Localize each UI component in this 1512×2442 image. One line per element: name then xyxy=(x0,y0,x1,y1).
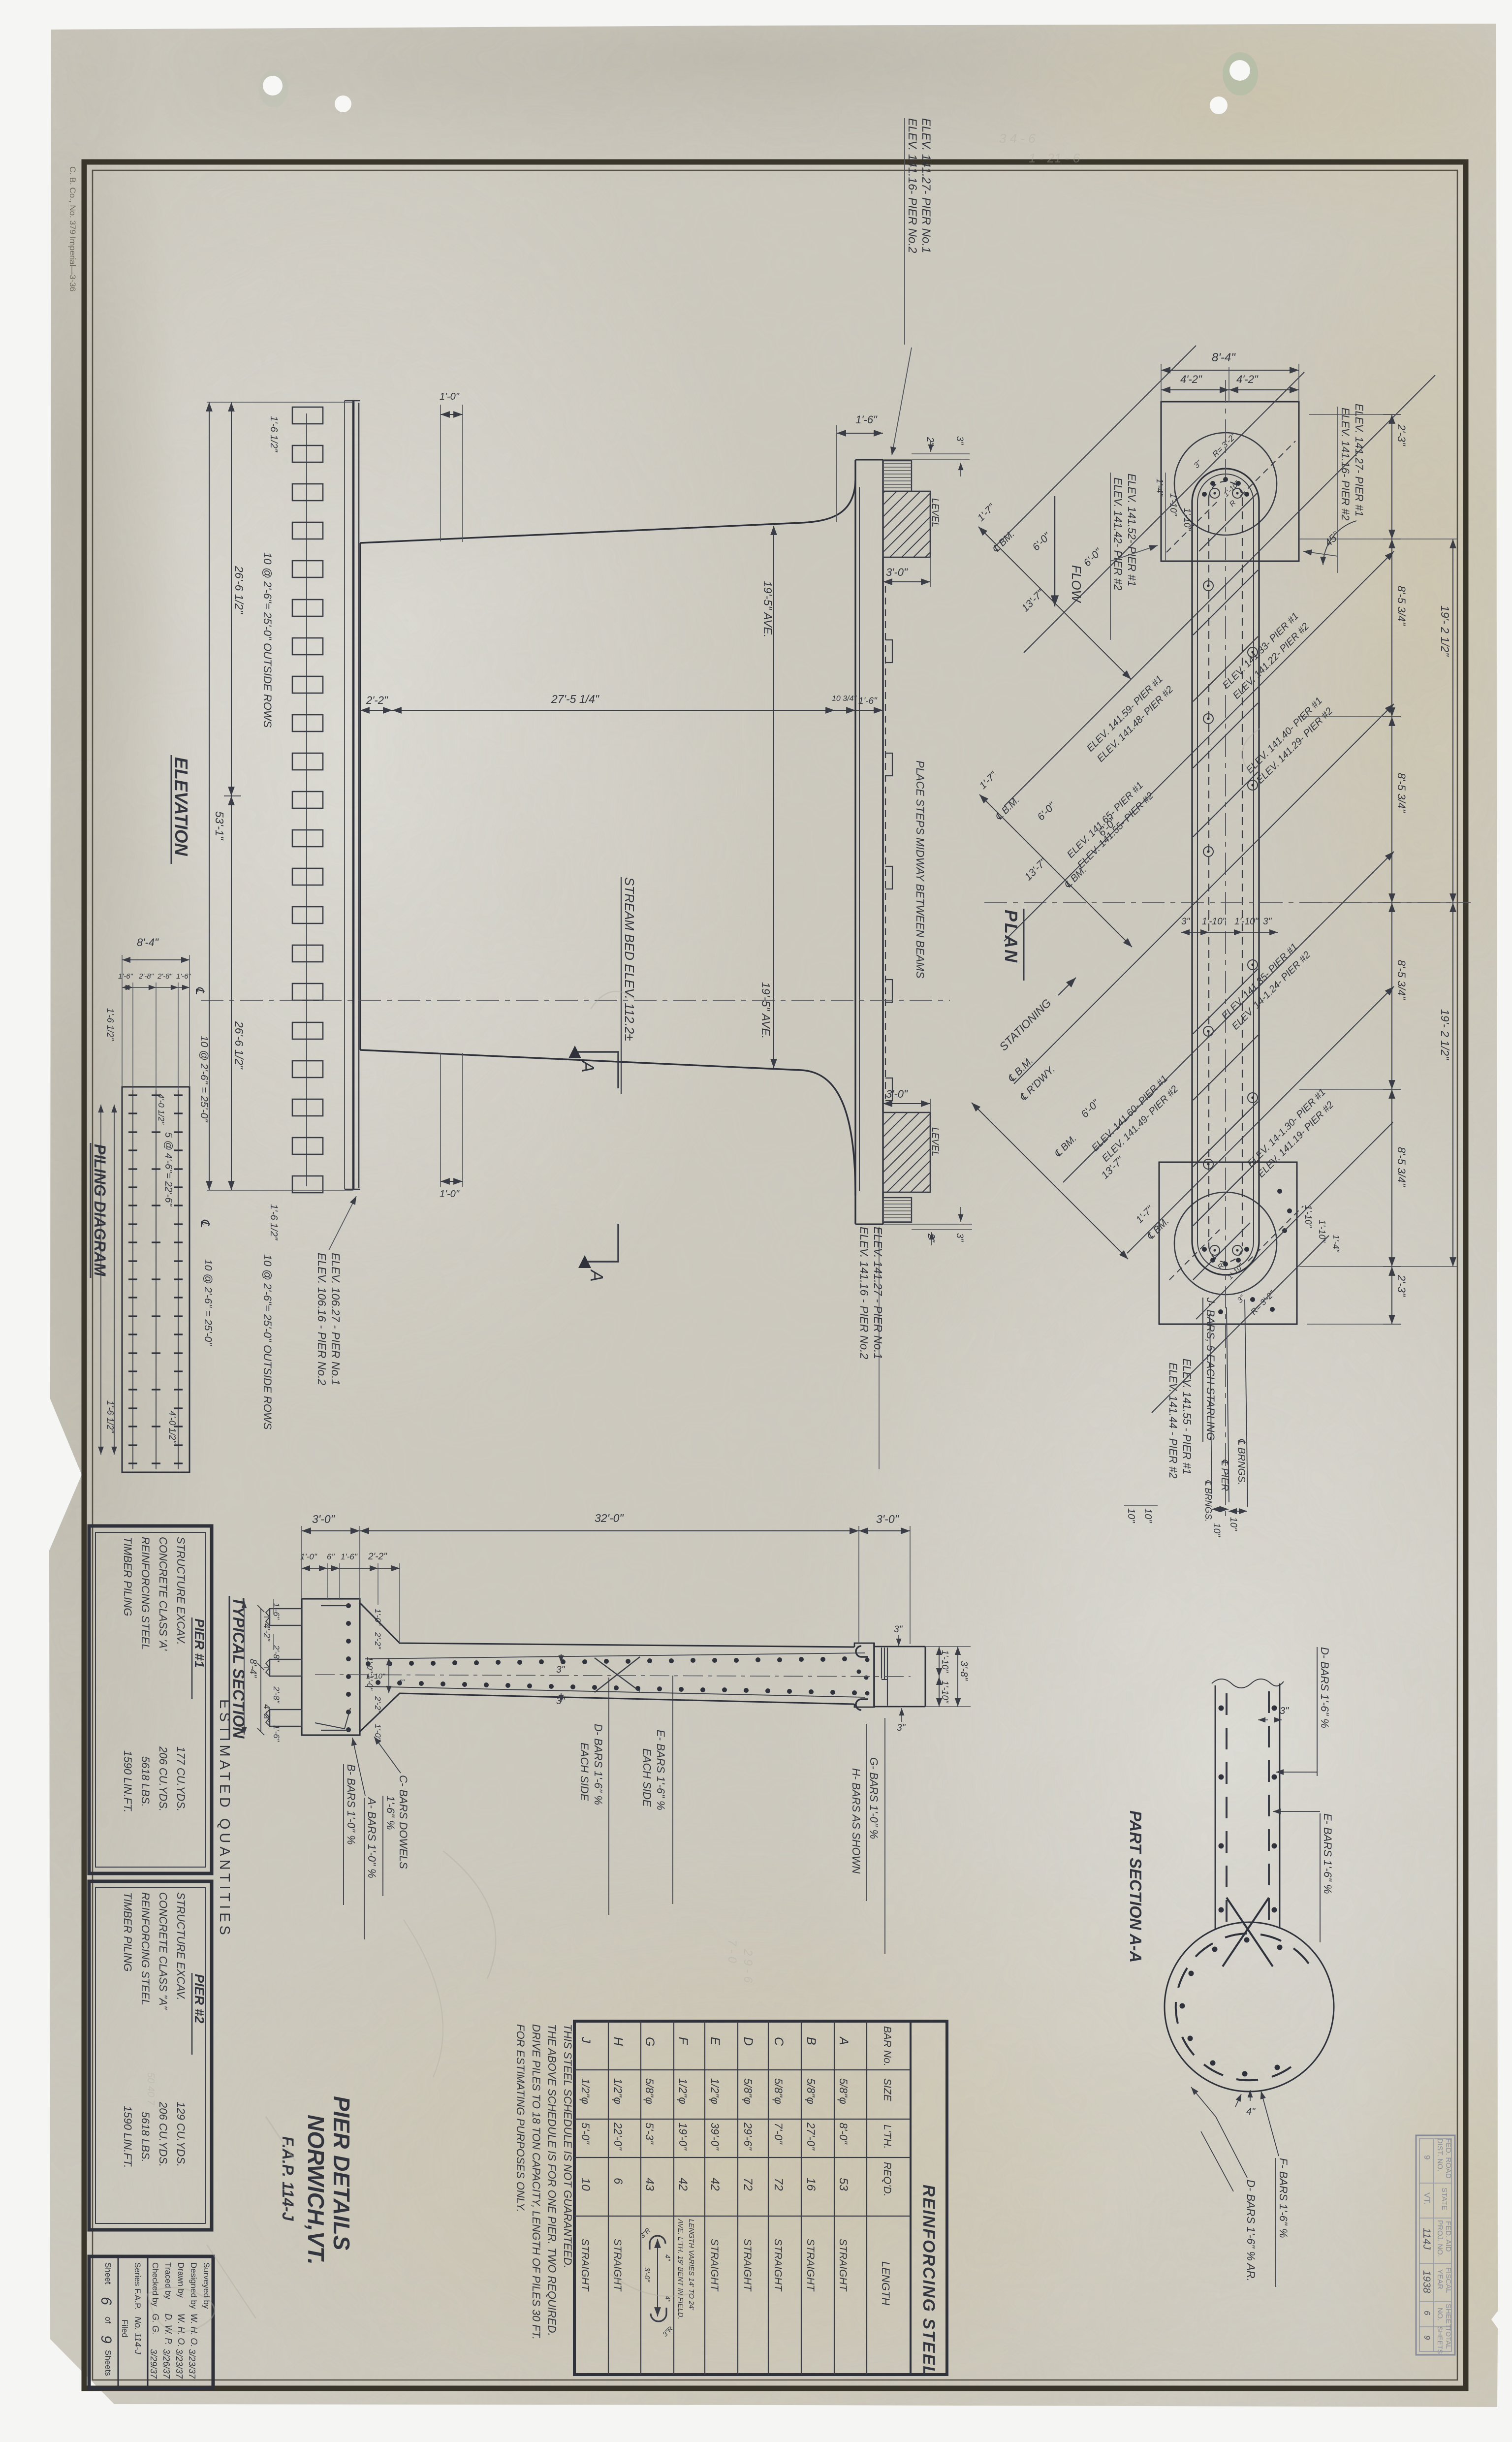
svg-text:1/2"φ: 1/2"φ xyxy=(677,2078,689,2104)
svg-text:1'-10": 1'-10" xyxy=(1303,1205,1313,1228)
svg-text:3'-0": 3'-0" xyxy=(886,566,908,578)
svg-text:9: 9 xyxy=(98,2335,114,2344)
svg-text:of: of xyxy=(103,2316,113,2323)
svg-text:10: 10 xyxy=(579,2178,592,2191)
svg-text:PLACE STEPS MIDWAY BETWEEN BEA: PLACE STEPS MIDWAY BETWEEN BEAMS xyxy=(914,761,926,979)
svg-text:72: 72 xyxy=(741,2178,755,2191)
svg-text:5'-0": 5'-0" xyxy=(579,2123,592,2145)
svg-text:72: 72 xyxy=(772,2178,785,2191)
svg-text:NORWICH,VT.: NORWICH,VT. xyxy=(303,2115,329,2265)
svg-text:C: C xyxy=(772,2037,786,2046)
svg-text:19'-5" AVE.: 19'-5" AVE. xyxy=(761,581,774,637)
svg-text:BAR No.: BAR No. xyxy=(882,2026,893,2066)
svg-text:1590 LIN.FT.: 1590 LIN.FT. xyxy=(122,1750,134,1812)
svg-text:8'-5 3/4": 8'-5 3/4" xyxy=(1395,960,1408,1000)
svg-text:5/8"φ: 5/8"φ xyxy=(805,2078,817,2104)
svg-text:STREAM BED ELEV. 112.2±: STREAM BED ELEV. 112.2± xyxy=(622,877,637,1041)
svg-text:4": 4" xyxy=(1246,2106,1256,2117)
svg-text:3": 3" xyxy=(556,1665,566,1675)
svg-text:J: J xyxy=(579,2036,593,2043)
svg-text:4'-0 1/2": 4'-0 1/2" xyxy=(157,1094,166,1125)
svg-text:STRAIGHT: STRAIGHT xyxy=(612,2239,623,2292)
svg-text:3'-0": 3'-0" xyxy=(876,1513,900,1525)
svg-text:2'-3": 2'-3" xyxy=(1395,424,1408,446)
svg-text:5 @ 4'-6"= 22'-6": 5 @ 4'-6"= 22'-6" xyxy=(163,1132,174,1206)
svg-text:℄ BRNGS.: ℄ BRNGS. xyxy=(1236,1438,1247,1485)
svg-text:177 CU.YDS.: 177 CU.YDS. xyxy=(175,1746,187,1811)
svg-text:PILING DIAGRAM: PILING DIAGRAM xyxy=(91,1144,109,1277)
svg-text:SHEETS: SHEETS xyxy=(1436,2326,1444,2354)
svg-text:PIER #1: PIER #1 xyxy=(192,1618,207,1668)
svg-text:6: 6 xyxy=(1422,2311,1432,2315)
svg-text:8'-5 3/4": 8'-5 3/4" xyxy=(1395,586,1408,626)
svg-text:5618 LBS.: 5618 LBS. xyxy=(139,2112,152,2162)
svg-text:27'-0": 27'-0" xyxy=(805,2122,817,2151)
svg-text:2'-8": 2'-8" xyxy=(138,972,154,981)
svg-text:19'- 2 1/2": 19'- 2 1/2" xyxy=(1439,1009,1451,1061)
svg-text:1'-4": 1'-4" xyxy=(1155,478,1165,497)
svg-text:THE ABOVE SCHEDULE IS FOR ONE: THE ABOVE SCHEDULE IS FOR ONE PIER. TWO … xyxy=(546,2024,558,2336)
svg-text:D- BARS 1'-6" %: D- BARS 1'-6" % xyxy=(592,1724,604,1805)
svg-text:1'-6" %: 1'-6" % xyxy=(384,1796,397,1830)
svg-text:Series F.A.P.: Series F.A.P. xyxy=(133,2262,142,2310)
svg-text:Drawn by: Drawn by xyxy=(176,2262,186,2298)
svg-text:4'-0 1/2": 4'-0 1/2" xyxy=(167,1411,177,1444)
svg-text:LENGTH: LENGTH xyxy=(880,2261,892,2305)
svg-text:FED. AID: FED. AID xyxy=(1444,2221,1452,2252)
svg-text:D- BARS 1'-6" % AR.: D- BARS 1'-6" % AR. xyxy=(1245,2180,1257,2282)
svg-text:1/2"φ: 1/2"φ xyxy=(709,2078,721,2104)
svg-text:1'-6 1/2": 1'-6 1/2" xyxy=(105,1008,115,1041)
svg-text:4'-2": 4'-2" xyxy=(262,1623,272,1642)
svg-text:1'-6": 1'-6" xyxy=(176,972,191,981)
svg-text:L'TH.: L'TH. xyxy=(882,2125,893,2149)
svg-text:1'-4": 1'-4" xyxy=(1331,1235,1341,1253)
svg-text:42: 42 xyxy=(708,2178,722,2191)
svg-text:6": 6" xyxy=(327,1552,335,1561)
svg-text:4": 4" xyxy=(398,1678,405,1686)
svg-text:3/26/37: 3/26/37 xyxy=(161,2349,171,2379)
svg-text:53: 53 xyxy=(837,2178,850,2191)
svg-text:26'-6 1/2": 26'-6 1/2" xyxy=(233,566,246,615)
svg-text:Sheets: Sheets xyxy=(103,2350,113,2376)
svg-text:1938: 1938 xyxy=(1421,2270,1432,2293)
svg-text:2'-3": 2'-3" xyxy=(1395,1274,1408,1297)
svg-text:ELEV. 141.55 - PIER #1: ELEV. 141.55 - PIER #1 xyxy=(1181,1359,1193,1475)
svg-text:PROJ. NO.: PROJ. NO. xyxy=(1436,2220,1444,2257)
svg-text:FLOW: FLOW xyxy=(1069,565,1084,603)
svg-text:No. 114-J: No. 114-J xyxy=(133,2316,143,2355)
svg-text:6: 6 xyxy=(611,2178,625,2185)
svg-text:STRAIGHT: STRAIGHT xyxy=(772,2239,784,2292)
svg-text:2'-8": 2'-8" xyxy=(272,1686,281,1704)
svg-text:4'-2": 4'-2" xyxy=(262,1704,272,1722)
svg-text:G: G xyxy=(643,2037,657,2046)
svg-text:1'-6": 1'-6" xyxy=(272,1603,281,1620)
svg-text:39'-0": 39'-0" xyxy=(709,2123,721,2151)
svg-text:2": 2" xyxy=(925,437,935,446)
svg-text:D- BARS 1'-6" %: D- BARS 1'-6" % xyxy=(1319,1647,1331,1728)
svg-text:Filed: Filed xyxy=(120,2319,129,2338)
svg-text:℄ PIER: ℄ PIER xyxy=(1219,1459,1230,1491)
svg-text:D: D xyxy=(741,2037,755,2046)
svg-text:YEAR: YEAR xyxy=(1436,2269,1444,2289)
svg-text:7 - 0: 7 - 0 xyxy=(725,1939,739,1964)
svg-text:A- BARS 1'-0" %: A- BARS 1'-0" % xyxy=(366,1797,378,1878)
svg-text:1'-10": 1'-10" xyxy=(1182,508,1192,531)
svg-text:ESTIMATED QUANTITIES: ESTIMATED QUANTITIES xyxy=(217,1699,232,1938)
svg-text:19'-0": 19'-0" xyxy=(677,2123,689,2151)
svg-text:3": 3" xyxy=(954,1233,965,1242)
svg-text:℄: ℄ xyxy=(193,986,206,994)
svg-text:SIZE: SIZE xyxy=(882,2078,893,2102)
svg-text:16: 16 xyxy=(804,2178,818,2191)
svg-text:1/2"φ: 1/2"φ xyxy=(579,2078,592,2104)
svg-text:FED. ROAD: FED. ROAD xyxy=(1444,2138,1452,2179)
svg-text:THIS STEEL SCHEDULE IS NOT GUA: THIS STEEL SCHEDULE IS NOT GUARANTEED. xyxy=(562,2024,574,2268)
svg-text:129 CU.YDS.: 129 CU.YDS. xyxy=(175,2102,187,2167)
svg-text:ELEV. 141.16 - PIER No.2: ELEV. 141.16 - PIER No.2 xyxy=(858,1227,871,1360)
svg-text:A: A xyxy=(578,1060,598,1073)
svg-text:2'-2": 2'-2" xyxy=(366,694,388,706)
svg-text:3/23/37: 3/23/37 xyxy=(174,2349,184,2379)
svg-text:1'-10": 1'-10" xyxy=(940,1681,950,1704)
svg-text:AVE. L'TH. 19' BENT IN FIELD.: AVE. L'TH. 19' BENT IN FIELD. xyxy=(676,2219,684,2319)
svg-text:3 4 - 6: 3 4 - 6 xyxy=(999,131,1036,146)
svg-text:ELEV. 141.27- PIER No.1: ELEV. 141.27- PIER No.1 xyxy=(919,118,933,253)
svg-text:19'- 2 1/2": 19'- 2 1/2" xyxy=(1439,605,1451,657)
svg-text:H: H xyxy=(611,2037,625,2046)
svg-text:19'-5" AVE.: 19'-5" AVE. xyxy=(759,982,772,1039)
svg-text:STRUCTURE EXCAV.: STRUCTURE EXCAV. xyxy=(175,1892,187,2000)
svg-text:W. H. O.: W. H. O. xyxy=(176,2314,186,2347)
svg-text:2'-2": 2'-2" xyxy=(373,1696,382,1713)
svg-text:2 9 - 6: 2 9 - 6 xyxy=(741,1949,755,1983)
svg-text:ELEV. 141.42- PIER #2: ELEV. 141.42- PIER #2 xyxy=(1112,477,1124,591)
svg-text:9: 9 xyxy=(1422,2155,1432,2159)
svg-text:10": 10" xyxy=(1228,1517,1238,1531)
svg-text:B: B xyxy=(804,2037,818,2045)
svg-text:2'-2": 2'-2" xyxy=(368,1552,387,1562)
svg-text:ELEV. 106.16 - PIER No.2: ELEV. 106.16 - PIER No.2 xyxy=(315,1253,328,1386)
svg-text:29'-6": 29'-6" xyxy=(742,2122,754,2151)
svg-text:1'-0": 1'-0" xyxy=(365,1657,374,1673)
svg-text:FOR ESTIMATING PURPOSES ONLY.: FOR ESTIMATING PURPOSES ONLY. xyxy=(514,2024,527,2212)
svg-text:NO.: NO. xyxy=(1436,2308,1444,2321)
svg-text:Designed by: Designed by xyxy=(189,2262,198,2309)
svg-text:1'-10": 1'-10" xyxy=(1234,917,1259,927)
svg-text:114J: 114J xyxy=(1421,2228,1432,2250)
svg-text:ELEV. 106.27 - PIER No.1: ELEV. 106.27 - PIER No.1 xyxy=(329,1253,342,1385)
svg-text:3/29/37: 3/29/37 xyxy=(149,2349,158,2379)
svg-text:3'-0": 3'-0" xyxy=(886,1088,908,1100)
svg-text:1'-6": 1'-6" xyxy=(855,413,878,426)
svg-text:5618 LBS.: 5618 LBS. xyxy=(139,1756,152,1807)
svg-text:F- BARS 1'-6" %: F- BARS 1'-6" % xyxy=(1277,2158,1290,2238)
svg-text:G- BARS 1'-0" %: G- BARS 1'-0" % xyxy=(868,1757,880,1839)
svg-text:PART SECTION A-A: PART SECTION A-A xyxy=(1127,1810,1145,1963)
svg-text:EACH SIDE: EACH SIDE xyxy=(641,1748,653,1807)
svg-text:FISCAL: FISCAL xyxy=(1444,2267,1452,2293)
svg-text:1'-10": 1'-10" xyxy=(1317,1220,1327,1243)
svg-text:10": 10" xyxy=(1211,1523,1222,1537)
svg-text:STRAIGHT: STRAIGHT xyxy=(579,2239,591,2292)
svg-text:22'-0": 22'-0" xyxy=(612,2122,624,2151)
svg-text:REINFORCING STEEL: REINFORCING STEEL xyxy=(919,2185,938,2377)
svg-text:Checked by: Checked by xyxy=(151,2262,160,2307)
svg-text:1'-10": 1'-10" xyxy=(366,1672,385,1681)
svg-text:ELEV. 141.27 - PIER No.1: ELEV. 141.27 - PIER No.1 xyxy=(872,1227,884,1359)
svg-text:STRAIGHT: STRAIGHT xyxy=(709,2239,720,2292)
svg-text:1'-6": 1'-6" xyxy=(858,696,878,706)
svg-text:ELEV. 141.52- PIER #1: ELEV. 141.52- PIER #1 xyxy=(1126,474,1138,587)
svg-text:3'-8": 3'-8" xyxy=(958,1661,969,1681)
svg-text:REQ'D.: REQ'D. xyxy=(882,2162,893,2197)
svg-text:10 @ 2'-6"= 25'-0" OUTSIDE ROW: 10 @ 2'-6"= 25'-0" OUTSIDE ROWS xyxy=(261,1254,274,1430)
svg-text:SHEET: SHEET xyxy=(1444,2304,1452,2328)
svg-text:1'-6 1/2": 1'-6 1/2" xyxy=(105,1400,115,1433)
svg-text:EACH SIDE: EACH SIDE xyxy=(578,1743,591,1801)
svg-text:4": 4" xyxy=(664,2254,672,2261)
svg-text:1'-10": 1'-10" xyxy=(1168,493,1178,516)
svg-text:10": 10" xyxy=(1142,1508,1153,1523)
svg-text:10": 10" xyxy=(1126,1508,1136,1523)
svg-text:E: E xyxy=(708,2037,722,2045)
svg-text:ELEV. 141.16- PIER No.2: ELEV. 141.16- PIER No.2 xyxy=(906,118,919,253)
svg-text:STATE: STATE xyxy=(1440,2188,1449,2210)
svg-text:H- BARS AS SHOWN: H- BARS AS SHOWN xyxy=(850,1768,862,1873)
svg-text:LEVEL: LEVEL xyxy=(930,1127,940,1156)
svg-text:8'-4": 8'-4" xyxy=(1212,351,1236,364)
svg-text:5/8"φ: 5/8"φ xyxy=(643,2078,656,2104)
svg-text:8'-4": 8'-4" xyxy=(248,1659,258,1678)
svg-text:F: F xyxy=(676,2037,690,2045)
svg-text:ELEV. 141.44 - PIER #2: ELEV. 141.44 - PIER #2 xyxy=(1167,1363,1179,1479)
svg-text:1'-6": 1'-6" xyxy=(118,972,133,981)
svg-text:E- BARS 1'-6" %: E- BARS 1'-6" % xyxy=(1322,1813,1334,1894)
svg-text:1'-0": 1'-0" xyxy=(300,1552,317,1561)
svg-text:6: 6 xyxy=(98,2297,114,2305)
svg-text:TOTAL: TOTAL xyxy=(1445,2327,1452,2349)
svg-text:1'-6 1/2": 1'-6 1/2" xyxy=(268,1204,279,1240)
svg-text:1'-0": 1'-0" xyxy=(373,1609,382,1626)
svg-text:8'-0": 8'-0" xyxy=(837,2123,850,2145)
svg-text:10 3/4": 10 3/4" xyxy=(832,695,857,703)
svg-text:206 CU.YDS.: 206 CU.YDS. xyxy=(157,2101,169,2167)
svg-text:3": 3" xyxy=(954,436,965,445)
svg-text:LENGTH VARIES 14' TO 24': LENGTH VARIES 14' TO 24' xyxy=(687,2219,695,2311)
svg-text:VT.: VT. xyxy=(1422,2192,1432,2205)
svg-text:3": 3" xyxy=(1181,917,1191,927)
svg-text:Sheet: Sheet xyxy=(103,2262,113,2284)
svg-text:2'-2": 2'-2" xyxy=(373,1632,382,1649)
svg-text:REINFORCING STEEL: REINFORCING STEEL xyxy=(139,1537,152,1650)
svg-text:1'-6": 1'-6" xyxy=(272,1725,281,1742)
svg-text:1'-0": 1'-0" xyxy=(373,1724,382,1741)
svg-text:4'-2": 4'-2" xyxy=(1236,373,1259,385)
svg-text:Traced by: Traced by xyxy=(163,2262,173,2299)
svg-text:10 @ 2'-6" = 25'-0": 10 @ 2'-6" = 25'-0" xyxy=(198,1036,210,1123)
svg-text:LEVEL: LEVEL xyxy=(930,498,940,527)
svg-text:ELEV. 141.16- PIER #2: ELEV. 141.16- PIER #2 xyxy=(1339,408,1352,521)
svg-text:9: 9 xyxy=(1422,2335,1432,2340)
svg-text:B- BARS 1'-0" %: B- BARS 1'-0" % xyxy=(345,1764,357,1845)
svg-text:10 @ 2'-6"= 25'-0" OUTSIDE ROW: 10 @ 2'-6"= 25'-0" OUTSIDE ROWS xyxy=(261,552,274,728)
svg-text:5/8"φ: 5/8"φ xyxy=(837,2078,850,2104)
svg-text:TIMBER PILING: TIMBER PILING xyxy=(122,1537,134,1616)
svg-text:5/8"φ: 5/8"φ xyxy=(772,2078,785,2104)
svg-text:26'-6 1/2": 26'-6 1/2" xyxy=(233,1021,246,1070)
svg-text:1'-0": 1'-0" xyxy=(440,1189,460,1200)
svg-text:27'-5 1/4": 27'-5 1/4" xyxy=(551,693,600,705)
svg-text:5/8"φ: 5/8"φ xyxy=(742,2078,754,2104)
svg-text:2'-8": 2'-8" xyxy=(157,972,173,981)
svg-text:43: 43 xyxy=(643,2178,656,2191)
svg-text:42: 42 xyxy=(676,2178,690,2191)
svg-text:C- BARS DOWELS: C- BARS DOWELS xyxy=(397,1775,409,1869)
svg-text:3": 3" xyxy=(894,1624,903,1635)
svg-text:8'-4": 8'-4" xyxy=(137,936,159,949)
svg-text:2'-8": 2'-8" xyxy=(272,1645,281,1662)
svg-text:PIER #2: PIER #2 xyxy=(192,1974,207,2024)
svg-text:PIER DETAILS: PIER DETAILS xyxy=(329,2096,354,2251)
svg-text:50 40 7: 50 40 7 xyxy=(145,2072,156,2106)
svg-text:3": 3" xyxy=(897,1723,906,1733)
svg-text:DRIVE PILES TO 18 TON CAPACITY: DRIVE PILES TO 18 TON CAPACITY, LENGTH O… xyxy=(530,2024,542,2340)
svg-text:PLAN: PLAN xyxy=(1001,910,1021,964)
svg-text:ELEVATION: ELEVATION xyxy=(171,757,191,856)
svg-text:10 @ 2'-6" = 25'-0": 10 @ 2'-6" = 25'-0" xyxy=(202,1259,214,1346)
svg-text:ELEV. 141.27- PIER #1: ELEV. 141.27- PIER #1 xyxy=(1353,404,1365,517)
svg-text:3/23/37: 3/23/37 xyxy=(187,2349,197,2379)
svg-text:3": 3" xyxy=(1263,917,1272,927)
svg-text:1'-6 1/2": 1'-6 1/2" xyxy=(268,416,279,452)
svg-text:STRAIGHT: STRAIGHT xyxy=(837,2239,849,2292)
svg-text:TIMBER PILING: TIMBER PILING xyxy=(122,1892,134,1971)
svg-text:℄: ℄ xyxy=(198,1219,213,1228)
svg-text:3": 3" xyxy=(1280,1706,1289,1716)
svg-text:A: A xyxy=(587,1269,607,1282)
svg-text:CONCRETE CLASS "A": CONCRETE CLASS "A" xyxy=(157,1892,169,2010)
svg-text:REINFORCING STEEL: REINFORCING STEEL xyxy=(139,1892,152,2005)
svg-text:A: A xyxy=(837,2036,850,2045)
svg-text:1/2"φ: 1/2"φ xyxy=(612,2078,624,2104)
svg-text:STRUCTURE EXCAV.: STRUCTURE EXCAV. xyxy=(175,1537,187,1645)
svg-text:5'-3": 5'-3" xyxy=(643,2123,656,2145)
svg-text:1'-6": 1'-6" xyxy=(341,1552,358,1561)
svg-text:1'-0": 1'-0" xyxy=(440,391,460,402)
svg-text:1590 LIN.FT.: 1590 LIN.FT. xyxy=(122,2106,134,2168)
svg-text:STRAIGHT: STRAIGHT xyxy=(805,2239,816,2292)
svg-text:3'-0": 3'-0" xyxy=(312,1513,336,1525)
svg-text:C. B. Co., No. 379 Imperial—3-: C. B. Co., No. 379 Imperial—3-36 xyxy=(68,166,77,291)
svg-text:2": 2" xyxy=(926,1233,936,1243)
svg-text:1'-10": 1'-10" xyxy=(1202,917,1227,927)
svg-text:8'-5 3/4": 8'-5 3/4" xyxy=(1395,1147,1408,1187)
svg-text:1 - 21 - 6: 1 - 21 - 6 xyxy=(1029,151,1080,165)
svg-text:DIST. NO.: DIST. NO. xyxy=(1436,2138,1444,2172)
svg-text:1'-10": 1'-10" xyxy=(940,1650,950,1673)
svg-text:53'-1": 53'-1" xyxy=(213,811,226,841)
svg-text:8'-5 3/4": 8'-5 3/4" xyxy=(1395,773,1408,813)
svg-text:4'-2": 4'-2" xyxy=(1180,373,1202,385)
svg-text:CONCRETE CLASS 'A': CONCRETE CLASS 'A' xyxy=(157,1537,169,1651)
svg-text:7'-0": 7'-0" xyxy=(772,2123,785,2145)
svg-text:STRAIGHT: STRAIGHT xyxy=(742,2239,753,2292)
svg-text:32'-0": 32'-0" xyxy=(595,1512,624,1524)
svg-text:3'-0": 3'-0" xyxy=(643,2267,651,2283)
svg-text:℄ BRNGS.: ℄ BRNGS. xyxy=(1203,1480,1213,1522)
svg-text:E- BARS 1'-6" %: E- BARS 1'-6" % xyxy=(655,1730,667,1810)
svg-text:206 CU.YDS.: 206 CU.YDS. xyxy=(157,1746,169,1811)
